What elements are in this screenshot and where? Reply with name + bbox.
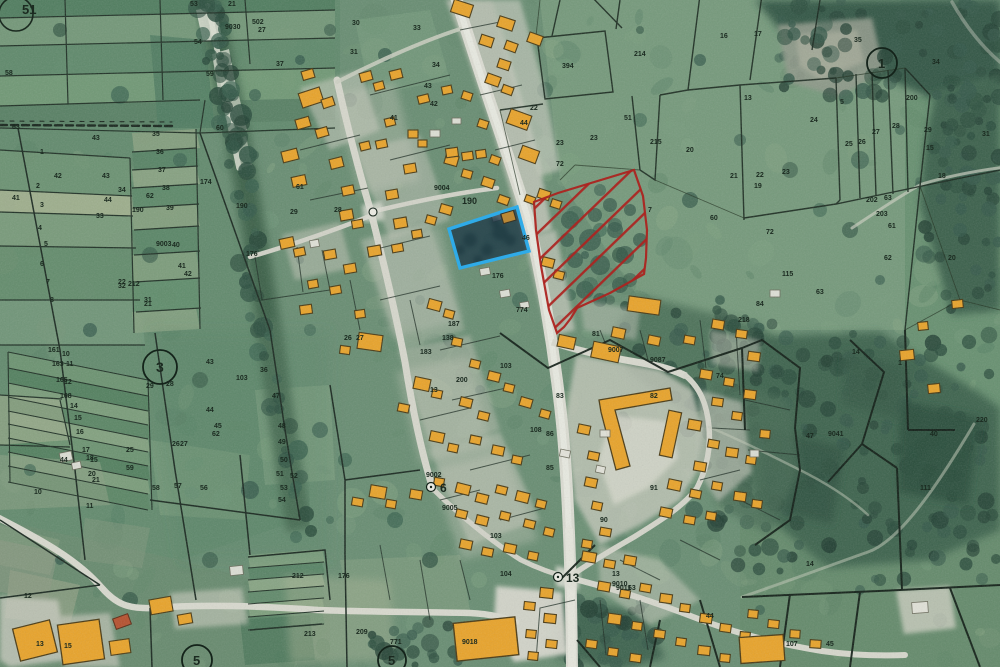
svg-text:16: 16 (76, 429, 84, 436)
svg-text:47: 47 (272, 393, 280, 400)
svg-text:29: 29 (146, 383, 154, 390)
svg-text:31: 31 (350, 49, 358, 56)
svg-text:42: 42 (54, 173, 62, 180)
svg-text:57: 57 (174, 483, 182, 490)
svg-text:11: 11 (66, 361, 74, 368)
svg-text:86: 86 (546, 431, 554, 438)
svg-text:13: 13 (744, 95, 752, 102)
svg-text:9010: 9010 (612, 581, 628, 588)
svg-text:3: 3 (40, 202, 44, 209)
svg-text:15: 15 (926, 145, 934, 152)
svg-text:13: 13 (36, 641, 44, 648)
svg-text:90: 90 (600, 517, 608, 524)
svg-text:176: 176 (492, 273, 504, 280)
svg-text:44: 44 (520, 120, 528, 127)
svg-text:9087: 9087 (650, 357, 666, 364)
svg-text:42: 42 (184, 271, 192, 278)
svg-text:1: 1 (878, 56, 885, 71)
svg-text:56: 56 (200, 485, 208, 492)
svg-text:212: 212 (292, 573, 304, 580)
svg-text:44: 44 (206, 407, 214, 414)
svg-text:34: 34 (432, 62, 440, 69)
svg-text:20: 20 (686, 147, 694, 154)
svg-text:5: 5 (44, 241, 48, 248)
svg-text:26: 26 (172, 441, 180, 448)
svg-text:47: 47 (806, 433, 814, 440)
svg-text:12: 12 (24, 593, 32, 600)
svg-text:44: 44 (706, 613, 714, 620)
svg-text:41: 41 (178, 263, 186, 270)
svg-text:176: 176 (246, 251, 258, 258)
svg-text:60: 60 (710, 215, 718, 222)
svg-text:394: 394 (562, 63, 574, 70)
svg-text:36: 36 (156, 149, 164, 156)
svg-text:36: 36 (260, 367, 268, 374)
svg-text:21: 21 (92, 477, 100, 484)
svg-text:52: 52 (290, 473, 298, 480)
svg-text:21: 21 (730, 173, 738, 180)
svg-text:22: 22 (756, 172, 764, 179)
svg-text:43: 43 (206, 359, 214, 366)
svg-text:42: 42 (430, 101, 438, 108)
svg-text:49: 49 (278, 439, 286, 446)
svg-text:502: 502 (252, 19, 264, 26)
svg-text:774: 774 (516, 307, 528, 314)
svg-text:45: 45 (826, 641, 834, 648)
svg-text:40: 40 (172, 242, 180, 249)
svg-text:108: 108 (530, 427, 542, 434)
svg-text:2: 2 (36, 183, 40, 190)
svg-text:5: 5 (840, 99, 844, 106)
svg-text:212: 212 (128, 281, 140, 288)
svg-text:53: 53 (190, 1, 198, 8)
svg-text:63: 63 (628, 585, 636, 592)
svg-text:25: 25 (126, 447, 134, 454)
svg-text:53: 53 (280, 485, 288, 492)
svg-text:220: 220 (976, 417, 988, 424)
svg-text:103: 103 (236, 375, 248, 382)
svg-text:200: 200 (456, 377, 468, 384)
svg-text:59: 59 (126, 465, 134, 472)
svg-text:165: 165 (56, 377, 68, 384)
svg-text:7: 7 (648, 207, 652, 214)
svg-text:35: 35 (854, 37, 862, 44)
svg-text:10: 10 (62, 351, 70, 358)
svg-text:168: 168 (60, 393, 72, 400)
svg-text:218: 218 (738, 317, 750, 324)
svg-text:60: 60 (216, 125, 224, 132)
svg-text:15: 15 (90, 457, 98, 464)
svg-text:83: 83 (556, 393, 564, 400)
svg-text:1: 1 (898, 360, 902, 367)
svg-text:82: 82 (650, 393, 658, 400)
svg-text:104: 104 (500, 571, 512, 578)
svg-text:63: 63 (816, 289, 824, 296)
svg-text:48: 48 (278, 423, 286, 430)
svg-text:27: 27 (356, 335, 364, 342)
svg-text:26: 26 (858, 139, 866, 146)
svg-text:23: 23 (590, 135, 598, 142)
svg-text:174: 174 (200, 179, 212, 186)
svg-text:14: 14 (70, 403, 78, 410)
svg-text:107: 107 (786, 641, 798, 648)
svg-text:38: 38 (162, 185, 170, 192)
svg-text:9004: 9004 (434, 185, 450, 192)
svg-text:23: 23 (556, 140, 564, 147)
svg-text:39: 39 (166, 205, 174, 212)
svg-text:214: 214 (634, 51, 646, 58)
svg-text:91: 91 (650, 485, 658, 492)
svg-text:84: 84 (756, 301, 764, 308)
svg-text:18: 18 (938, 173, 946, 180)
svg-text:5: 5 (193, 653, 200, 667)
svg-text:28: 28 (166, 381, 174, 388)
svg-text:31: 31 (144, 297, 152, 304)
svg-text:25: 25 (845, 141, 853, 148)
svg-text:9005: 9005 (442, 505, 458, 512)
svg-text:59: 59 (206, 71, 214, 78)
svg-text:54: 54 (194, 39, 202, 46)
svg-text:62: 62 (146, 193, 154, 200)
svg-text:115: 115 (782, 271, 793, 278)
svg-text:6: 6 (440, 481, 447, 495)
svg-text:26: 26 (344, 335, 352, 342)
svg-text:187: 187 (448, 321, 460, 328)
svg-text:21: 21 (228, 1, 236, 8)
svg-text:190: 190 (462, 196, 477, 206)
svg-text:7: 7 (46, 279, 50, 286)
svg-text:50: 50 (280, 457, 288, 464)
svg-text:4: 4 (38, 225, 42, 232)
svg-text:29: 29 (290, 209, 298, 216)
svg-text:58: 58 (152, 485, 160, 492)
svg-text:31: 31 (982, 131, 990, 138)
svg-text:44: 44 (104, 197, 112, 204)
svg-text:13: 13 (566, 571, 580, 585)
svg-text:72: 72 (766, 229, 774, 236)
svg-text:33: 33 (96, 213, 104, 220)
svg-text:58: 58 (5, 70, 13, 77)
svg-text:51: 51 (624, 115, 632, 122)
svg-text:43: 43 (102, 173, 110, 180)
svg-text:32: 32 (118, 283, 126, 290)
svg-text:62: 62 (212, 431, 220, 438)
svg-text:27: 27 (180, 441, 188, 448)
svg-text:72: 72 (556, 161, 564, 168)
svg-text:190: 190 (132, 207, 144, 214)
svg-text:11: 11 (86, 503, 94, 510)
svg-text:40: 40 (930, 431, 938, 438)
svg-text:1: 1 (40, 149, 44, 156)
svg-text:209: 209 (356, 629, 368, 636)
svg-text:43: 43 (92, 135, 100, 142)
svg-text:13: 13 (430, 387, 438, 394)
svg-text:24: 24 (810, 117, 818, 124)
svg-text:23: 23 (782, 169, 790, 176)
svg-text:43: 43 (424, 83, 432, 90)
svg-text:14: 14 (806, 561, 814, 568)
svg-text:9003: 9003 (156, 241, 172, 248)
svg-text:5: 5 (388, 653, 395, 667)
svg-text:34: 34 (932, 59, 940, 66)
svg-text:20: 20 (948, 255, 956, 262)
svg-text:37: 37 (158, 167, 166, 174)
svg-text:215: 215 (650, 139, 662, 146)
svg-text:45: 45 (214, 423, 222, 430)
svg-text:17: 17 (754, 31, 762, 38)
svg-text:138: 138 (442, 335, 454, 342)
svg-text:9002: 9002 (426, 472, 442, 479)
svg-text:27: 27 (258, 27, 266, 34)
svg-text:161: 161 (48, 347, 60, 354)
svg-text:28: 28 (892, 123, 900, 130)
svg-text:163: 163 (52, 361, 64, 368)
svg-text:14: 14 (852, 349, 860, 356)
svg-text:35: 35 (152, 131, 160, 138)
svg-text:28: 28 (334, 207, 342, 214)
svg-text:19: 19 (754, 183, 762, 190)
svg-text:41: 41 (12, 195, 20, 202)
svg-text:15: 15 (74, 415, 82, 422)
svg-text:103: 103 (490, 533, 502, 540)
svg-text:6: 6 (40, 261, 44, 268)
svg-text:202: 202 (866, 197, 878, 204)
svg-text:9018: 9018 (462, 639, 478, 646)
svg-text:51: 51 (276, 471, 284, 478)
svg-text:111: 111 (920, 485, 931, 492)
svg-text:9041: 9041 (828, 431, 844, 438)
svg-text:3: 3 (156, 359, 164, 375)
svg-text:63: 63 (884, 195, 892, 202)
svg-text:8: 8 (50, 297, 54, 304)
svg-text:44: 44 (60, 457, 68, 464)
svg-text:29: 29 (924, 127, 932, 134)
svg-text:10: 10 (34, 489, 42, 496)
svg-text:176: 176 (338, 573, 350, 580)
svg-text:9007: 9007 (608, 347, 624, 354)
svg-text:46: 46 (522, 235, 530, 242)
svg-text:74: 74 (716, 373, 724, 380)
svg-text:15: 15 (64, 643, 72, 650)
svg-text:17: 17 (82, 447, 90, 454)
svg-text:213: 213 (304, 631, 316, 638)
svg-text:27: 27 (872, 129, 880, 136)
svg-text:13: 13 (612, 571, 620, 578)
svg-text:54: 54 (278, 497, 286, 504)
svg-text:41: 41 (390, 115, 398, 122)
svg-text:34: 34 (118, 187, 126, 194)
svg-text:63: 63 (12, 124, 20, 131)
svg-text:37: 37 (276, 61, 284, 68)
svg-text:33: 33 (413, 25, 421, 32)
svg-text:30: 30 (352, 20, 360, 27)
svg-text:62: 62 (884, 255, 892, 262)
svg-text:183: 183 (420, 349, 432, 356)
svg-text:85: 85 (546, 465, 554, 472)
svg-text:103: 103 (500, 363, 512, 370)
svg-text:9030: 9030 (225, 24, 241, 31)
svg-text:22: 22 (530, 105, 538, 112)
svg-text:200: 200 (906, 95, 918, 102)
svg-text:61: 61 (888, 223, 896, 230)
svg-text:81: 81 (592, 331, 600, 338)
svg-text:203: 203 (876, 211, 888, 218)
svg-text:16: 16 (720, 33, 728, 40)
svg-text:190: 190 (236, 203, 248, 210)
svg-text:51: 51 (22, 2, 36, 17)
svg-text:771: 771 (390, 639, 402, 646)
svg-text:61: 61 (296, 184, 304, 191)
